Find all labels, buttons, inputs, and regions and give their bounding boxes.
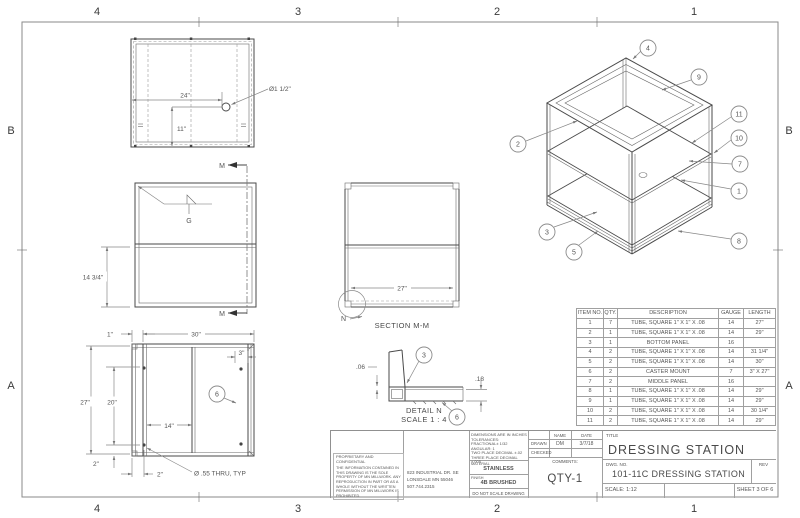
detail-view: .06 .18 3 6 DETAIL N SCALE 1 : 4 — [356, 347, 487, 425]
drawing-title: DRESSING STATION — [608, 443, 745, 457]
table-row: 91TUBE, SQUARE 1" X 1" X .081429" — [577, 396, 776, 406]
table-row: 52TUBE, SQUARE 1" X 1" X .081430" — [577, 357, 776, 367]
dim-18: .18 — [475, 376, 484, 383]
balloon-9-label: 9 — [697, 75, 701, 82]
dwg-no-label: DWG. NO. — [606, 462, 628, 467]
date-header: DATE — [571, 433, 602, 438]
drawn-date: 3/7/18 — [571, 441, 602, 447]
table-row: 21TUBE, SQUARE 1" X 1" X .081429" — [577, 328, 776, 338]
sheet-value: SHEET 3 OF 6 — [734, 487, 776, 493]
zone-bottom-1: 1 — [691, 503, 697, 515]
top-view: Ø1 1/2" 24" 11" — [131, 38, 292, 148]
dim-3: 3" — [239, 350, 246, 357]
balloon-3-label: 3 — [545, 230, 549, 237]
bom-table: ITEM NO. QTY. DESCRIPTION GAUGE LENGTH 1… — [576, 308, 776, 426]
balloon-4-label: 4 — [646, 46, 650, 53]
title-label: TITLE — [606, 433, 618, 438]
no-scale-note: DO NOT SCALE DRAWING — [469, 491, 528, 496]
section-letter-bottom: M — [219, 311, 225, 318]
dim-06: .06 — [356, 364, 365, 371]
balloon-5-label: 5 — [572, 250, 576, 257]
balloon-3-label: 3 — [422, 353, 426, 360]
address-line-2: LONSDALE MN 55046 — [407, 476, 467, 483]
detail-caption-line2: SCALE 1 : 4 — [401, 415, 447, 424]
bom-header-qty: QTY. — [604, 309, 618, 319]
table-row: 17TUBE, SQUARE 1" X 1" X .081427" — [577, 318, 776, 328]
drawn-label: DRAWN — [531, 441, 547, 446]
zone-left-a: A — [7, 380, 15, 392]
table-row: 81TUBE, SQUARE 1" X 1" X .081429" — [577, 387, 776, 397]
table-row: 31BOTTOM PANEL16 — [577, 338, 776, 348]
detail-letter-n: N — [341, 316, 346, 323]
balloon-8-label: 8 — [737, 239, 741, 246]
bom-header-item: ITEM NO. — [577, 309, 604, 319]
balloon-6-detail-label: 6 — [455, 415, 459, 422]
balloon-6-label: 6 — [215, 392, 219, 399]
company-address: 823 INDUSTRIAL DR. SE LONSDALE MN 55046 … — [407, 469, 467, 490]
table-row: 102TUBE, SQUARE 1" X 1" X .081430 1/4" — [577, 406, 776, 416]
table-row: 42TUBE, SQUARE 1" X 1" X .081431 1/4" — [577, 348, 776, 358]
dwg-no-value: 101-11C DRESSING STATION — [612, 469, 745, 479]
holes-view: 6 1" 30" 3" 27" 20" 14" 2" 2" Ø .55 THRU… — [76, 329, 256, 479]
balloon-2-label: 2 — [516, 142, 520, 149]
address-line-1: 823 INDUSTRIAL DR. SE — [407, 469, 467, 476]
comments-label: COMMENTS: — [528, 459, 602, 464]
address-line-3: 507.744.2315 — [407, 483, 467, 490]
drawing-sheet: { "sheet": { "zone_cols": ["4","3","2","… — [0, 0, 800, 518]
dim-27: 27" — [80, 400, 90, 407]
bom-header-length: LENGTH — [744, 309, 776, 319]
balloon-1-label: 1 — [737, 189, 741, 196]
bom-header-desc: DESCRIPTION — [618, 309, 719, 319]
bom-header-gauge: GAUGE — [719, 309, 744, 319]
dim-20: 20" — [107, 400, 117, 407]
table-row: 112TUBE, SQUARE 1" X 1" X .081429" — [577, 416, 776, 426]
balloon-7-label: 7 — [738, 162, 742, 169]
proprietary-heading: PROPRIETARY AND CONFIDENTIAL — [336, 455, 401, 464]
rev-label: REV — [751, 462, 776, 467]
zone-bottom-3: 3 — [295, 503, 301, 515]
finish-value: 4B BRUSHED — [469, 480, 528, 486]
section-view: 27" N SECTION M-M — [339, 183, 460, 330]
dim-27-section: 27" — [397, 286, 407, 293]
detail-caption-line1: DETAIL N — [406, 406, 442, 415]
weld-symbol-letter: G — [186, 218, 191, 225]
dim-14-3-4: 14 3/4" — [83, 275, 104, 282]
title-block: PROPRIETARY AND CONFIDENTIAL THE INFORMA… — [330, 430, 776, 498]
dim-30: 30" — [191, 332, 201, 339]
tolerance-block: DIMENSIONS ARE IN INCHES TOLERANCES: FRA… — [471, 433, 527, 465]
proprietary-body: THE INFORMATION CONTAINED IN THIS DRAWIN… — [336, 466, 401, 498]
proprietary-note: PROPRIETARY AND CONFIDENTIAL THE INFORMA… — [333, 453, 404, 500]
hole-diameter-callout: Ø1 1/2" — [269, 86, 292, 93]
qty-note: QTY-1 — [528, 473, 602, 485]
drawn-name: DM — [549, 441, 571, 447]
zone-bottom-2: 2 — [494, 503, 500, 515]
table-row: 62CASTER MOUNT73" X 27" — [577, 367, 776, 377]
zone-left-b: B — [7, 125, 14, 137]
balloon-10-label: 10 — [735, 136, 743, 143]
hole-outline — [222, 103, 230, 111]
scale-value: SCALE: 1:12 — [605, 487, 637, 493]
name-header: NAME — [549, 433, 571, 438]
zone-bottom-4: 4 — [94, 503, 100, 515]
balloon-11-label: 11 — [735, 112, 742, 119]
dim-14: 14" — [164, 423, 174, 430]
hole-note: Ø .55 THRU, TYP — [194, 471, 246, 478]
zone-top-1: 1 — [691, 6, 697, 18]
table-row: 72MIDDLE PANEL16 — [577, 377, 776, 387]
dim-11: 11" — [177, 126, 187, 133]
zone-top-2: 2 — [494, 6, 500, 18]
zone-right-a: A — [785, 380, 793, 392]
material-value: STAINLESS — [469, 466, 528, 472]
dim-2-vertical: 2" — [93, 461, 100, 468]
section-letter-top: M — [219, 163, 225, 170]
zone-right-b: B — [785, 125, 792, 137]
dim-1: 1" — [107, 332, 114, 339]
checked-label: CHECKED — [531, 450, 551, 455]
dim-24: 24" — [180, 93, 190, 100]
dim-2-horizontal: 2" — [157, 472, 164, 479]
zone-top-3: 3 — [295, 6, 301, 18]
isometric-view: 4 9 2 11 10 7 1 3 5 8 — [510, 40, 748, 260]
section-caption: SECTION M-M — [375, 321, 430, 330]
zone-top-4: 4 — [94, 6, 100, 18]
front-view: M M G 14 3/4" — [80, 162, 256, 318]
bom-header-row: ITEM NO. QTY. DESCRIPTION GAUGE LENGTH — [577, 309, 776, 319]
